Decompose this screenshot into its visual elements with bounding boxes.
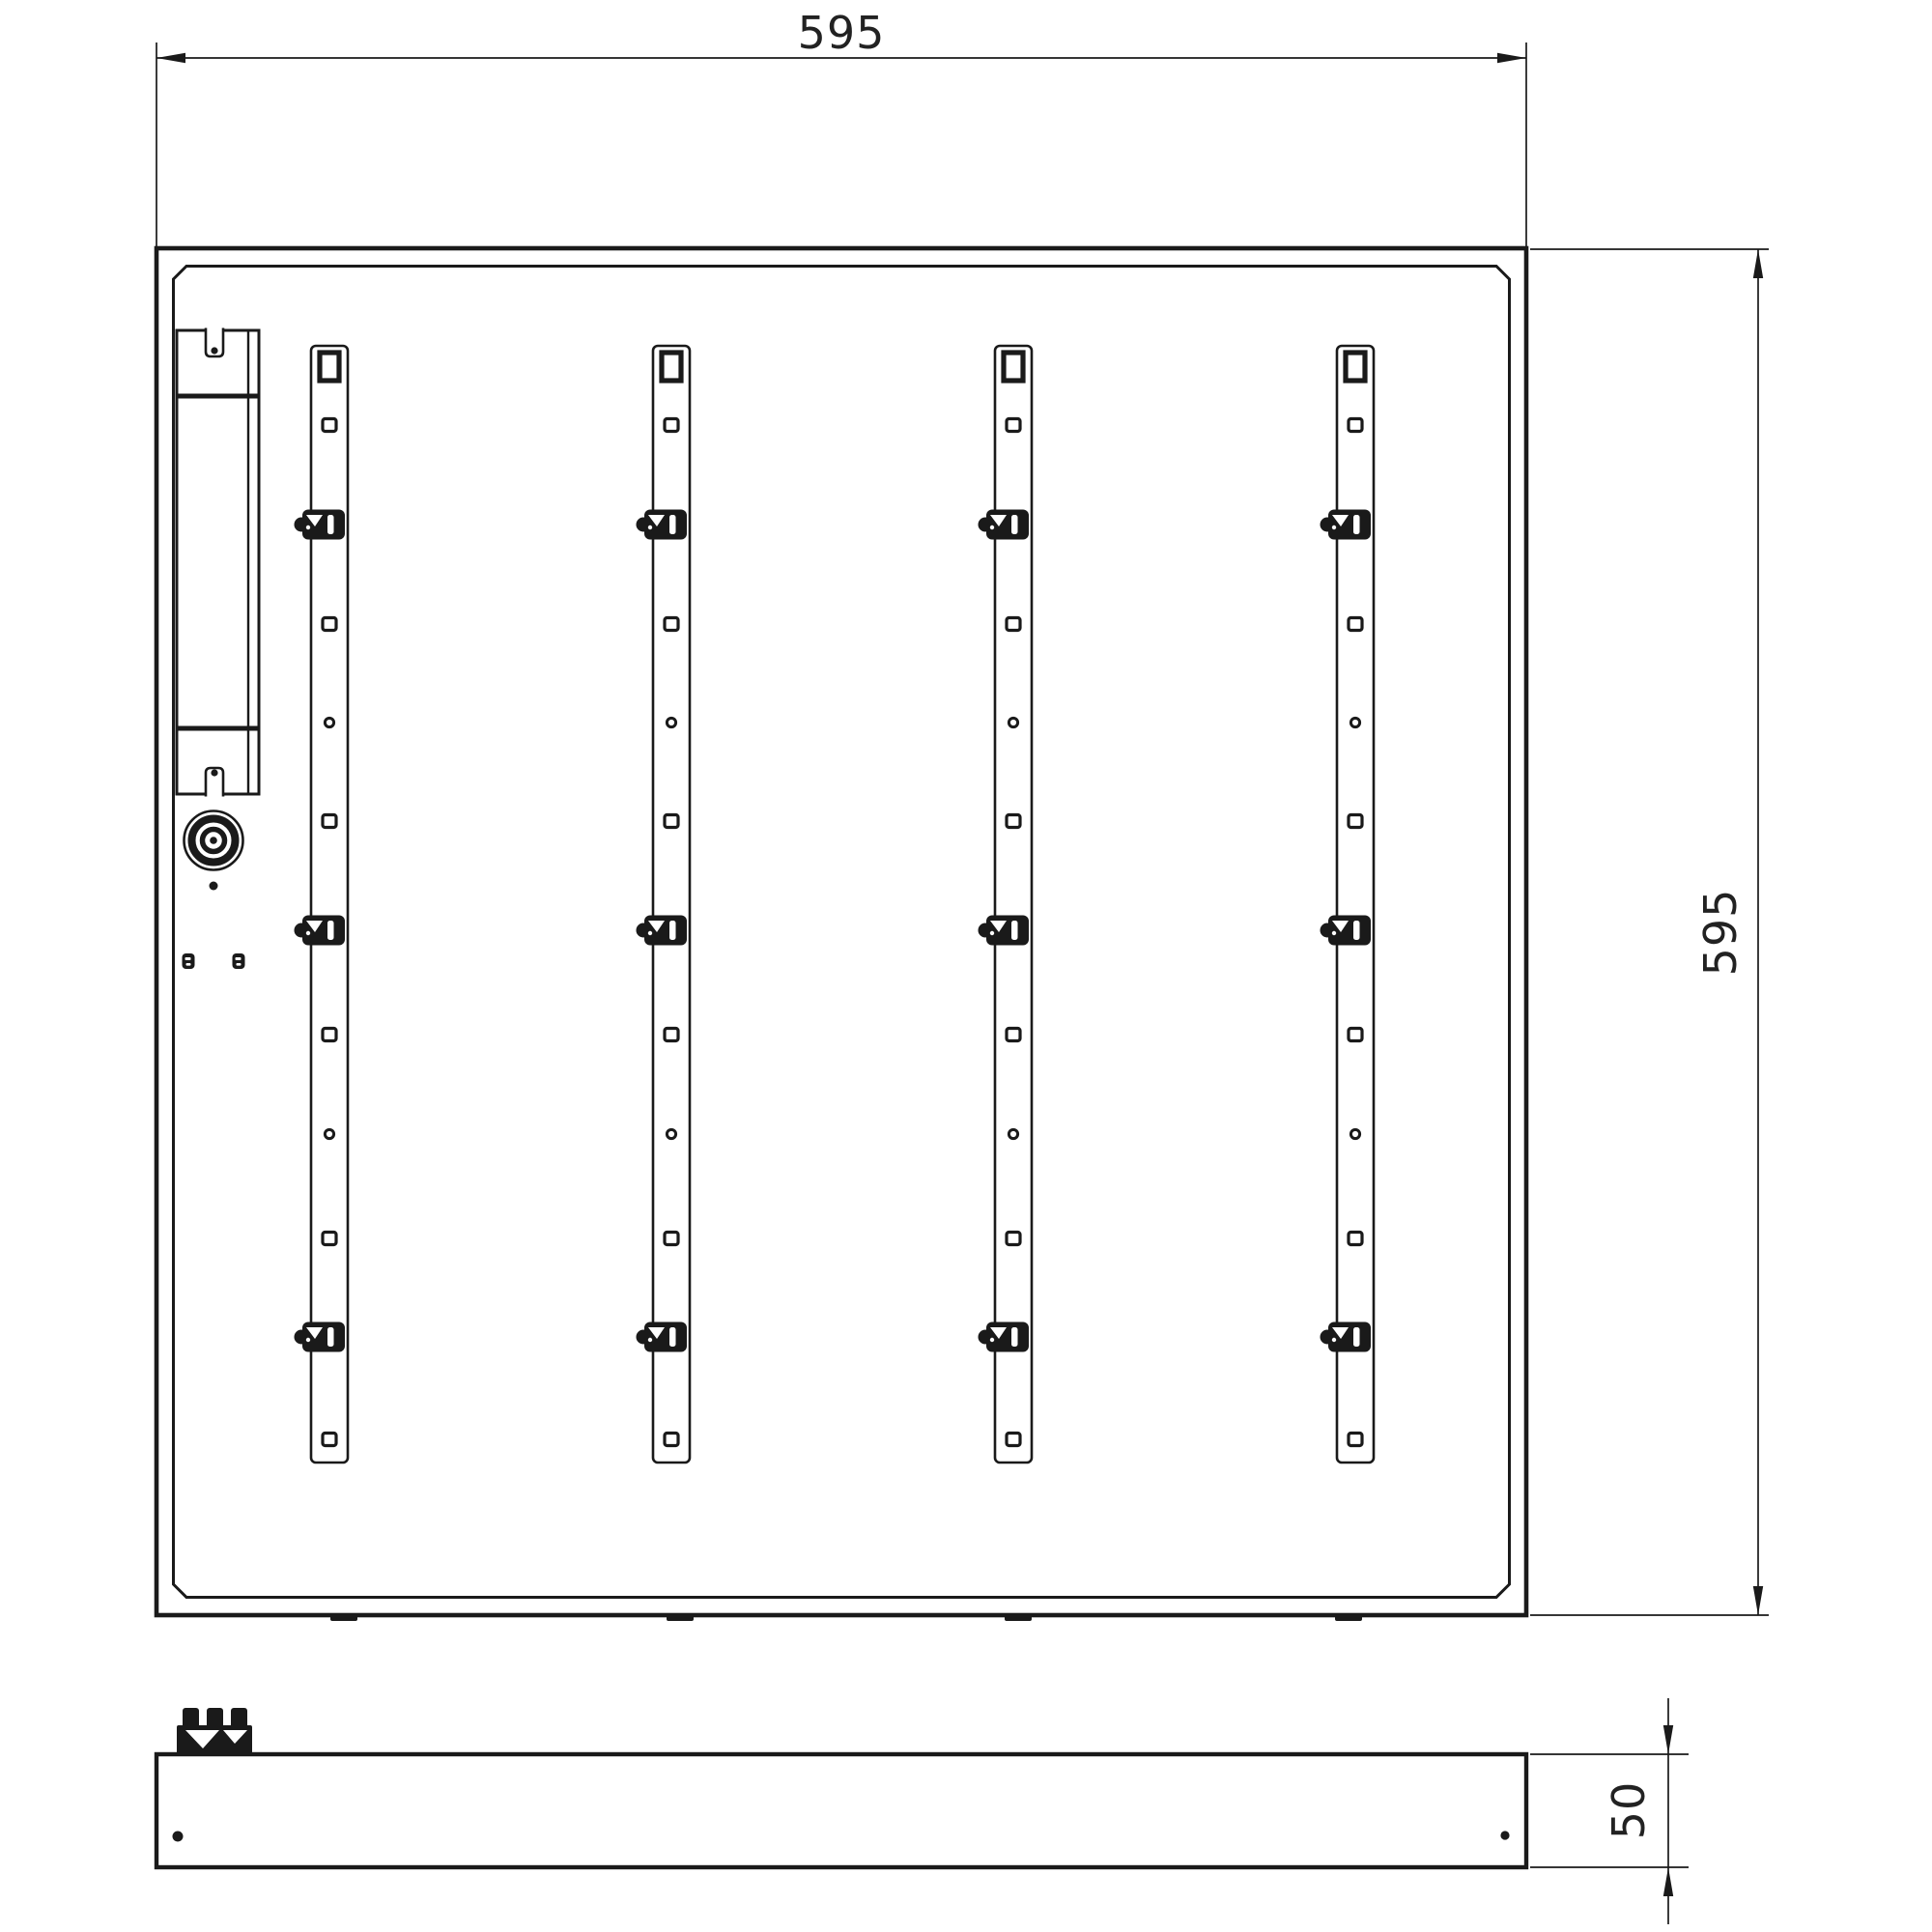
screw xyxy=(233,953,245,969)
side-rivet-right xyxy=(1500,1831,1509,1839)
dimension-height: 595 xyxy=(1530,249,1769,1615)
arrowhead-down-icon xyxy=(1663,1725,1673,1754)
terminal-block xyxy=(177,1708,252,1754)
cable-knockout xyxy=(185,811,243,870)
arrowhead-up-icon xyxy=(1663,1867,1673,1896)
mounting-screws xyxy=(183,953,245,969)
terminal-body xyxy=(177,1725,252,1754)
dimension-depth-label: 50 xyxy=(1603,1781,1655,1840)
dimension-width: 595 xyxy=(156,7,1526,246)
panel-top-view xyxy=(156,248,1526,1621)
pilot-hole xyxy=(210,882,218,891)
driver-bracket xyxy=(177,330,259,794)
arrowhead-down-icon xyxy=(1753,1586,1763,1615)
led-strip-3 xyxy=(979,346,1033,1463)
technical-drawing-canvas: 595 595 50 xyxy=(0,0,1932,1932)
screw xyxy=(183,953,195,969)
arrowhead-up-icon xyxy=(1753,249,1763,278)
led-strip-2 xyxy=(637,346,691,1463)
bracket-slot-top-hole xyxy=(211,347,217,354)
side-rivet-left xyxy=(173,1832,184,1842)
dimension-height-label: 595 xyxy=(1694,889,1747,977)
panel-light-technical-drawing: 595 595 50 xyxy=(0,0,1932,1932)
dimension-depth: 50 xyxy=(1530,1698,1689,1924)
bracket-slot-bottom-hole xyxy=(211,769,217,776)
led-strip-4 xyxy=(1321,346,1375,1463)
led-strip-1 xyxy=(295,346,349,1463)
driver-unit xyxy=(177,328,259,797)
arrowhead-left-icon xyxy=(156,53,185,63)
panel-side-view xyxy=(156,1708,1526,1867)
frame-inner-edge xyxy=(174,267,1510,1598)
side-profile xyxy=(156,1754,1526,1867)
dimension-width-label: 595 xyxy=(798,7,886,59)
arrowhead-right-icon xyxy=(1497,53,1526,63)
